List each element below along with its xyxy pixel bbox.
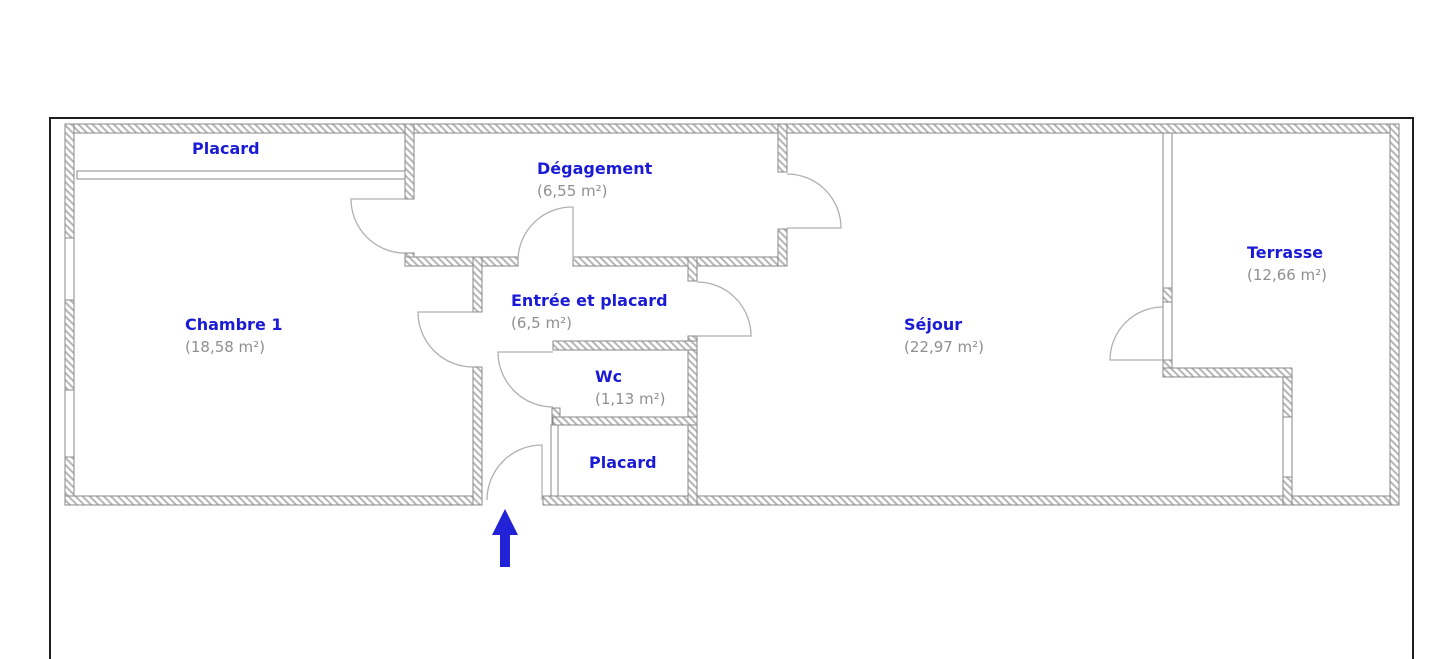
room-label-degagement: Dégagement (6,55 m²)	[537, 158, 652, 202]
room-label-sejour: Séjour (22,97 m²)	[904, 314, 984, 358]
room-label-chambre1: Chambre 1 (18,58 m²)	[185, 314, 283, 358]
floor-plan: Placard Dégagement (6,55 m²) Chambre 1 (…	[0, 0, 1440, 659]
plan-frame	[50, 118, 1413, 659]
door-wc	[498, 352, 553, 407]
room-label-placard-top: Placard	[192, 138, 260, 160]
room-name: Entrée et placard	[511, 290, 668, 312]
room-area: (12,66 m²)	[1247, 264, 1327, 286]
room-area: (6,55 m²)	[537, 180, 652, 202]
room-area: (22,97 m²)	[904, 336, 984, 358]
room-name: Chambre 1	[185, 314, 283, 336]
room-label-placard-bottom: Placard	[589, 452, 657, 474]
room-label-entree: Entrée et placard (6,5 m²)	[511, 290, 668, 334]
room-name: Placard	[192, 138, 260, 160]
door-chambre-degagement	[351, 199, 405, 253]
door-entree-sejour	[697, 282, 751, 336]
room-name: Placard	[589, 452, 657, 474]
door-sejour-terrasse	[1110, 307, 1163, 360]
room-name: Terrasse	[1247, 242, 1327, 264]
door-chambre-entree	[418, 312, 473, 367]
room-label-wc: Wc (1,13 m²)	[595, 366, 666, 410]
room-name: Wc	[595, 366, 666, 388]
room-name: Dégagement	[537, 158, 652, 180]
room-name: Séjour	[904, 314, 984, 336]
room-area: (18,58 m²)	[185, 336, 283, 358]
room-area: (6,5 m²)	[511, 312, 668, 334]
door-degagement-sejour	[787, 174, 841, 228]
room-label-terrasse: Terrasse (12,66 m²)	[1247, 242, 1327, 286]
door-entrance	[487, 445, 542, 500]
entrance-arrow-icon	[492, 509, 518, 567]
room-area: (1,13 m²)	[595, 388, 666, 410]
door-degagement-entree	[518, 207, 573, 261]
